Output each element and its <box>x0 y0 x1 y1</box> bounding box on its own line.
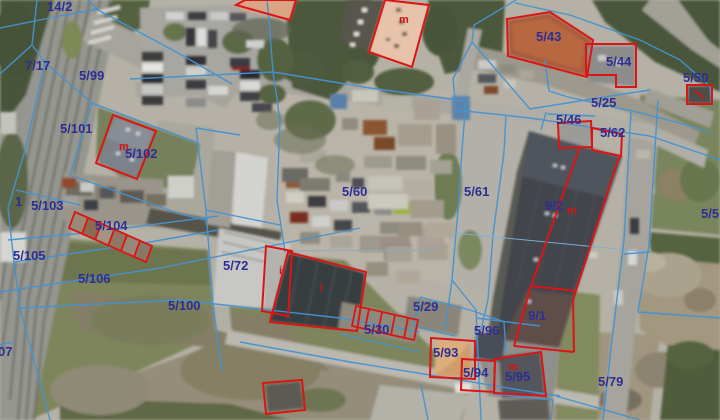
svg-text:5/46: 5/46 <box>556 112 581 127</box>
svg-text:5/104: 5/104 <box>95 218 128 233</box>
svg-text:i: i <box>320 282 323 294</box>
svg-text:5/99: 5/99 <box>79 68 104 83</box>
svg-text:14/2: 14/2 <box>47 0 72 14</box>
svg-text:5/44: 5/44 <box>606 54 632 69</box>
svg-text:5/60: 5/60 <box>342 184 367 199</box>
svg-text:5/96: 5/96 <box>474 323 499 338</box>
svg-text:m: m <box>399 14 409 26</box>
svg-text:5/102: 5/102 <box>125 146 158 161</box>
svg-text:5/105: 5/105 <box>13 248 46 263</box>
svg-text:5/94: 5/94 <box>463 365 489 380</box>
svg-text:1: 1 <box>15 194 22 209</box>
svg-text:9/1: 9/1 <box>528 308 546 323</box>
svg-text:5/43: 5/43 <box>536 29 561 44</box>
svg-text:5/30: 5/30 <box>364 322 389 337</box>
svg-text:07: 07 <box>0 344 12 359</box>
svg-text:5/5: 5/5 <box>701 206 719 221</box>
svg-text:5/62: 5/62 <box>600 125 625 140</box>
svg-text:5/101: 5/101 <box>60 121 93 136</box>
svg-text:9/2: 9/2 <box>545 198 563 213</box>
svg-text:m: m <box>508 361 518 373</box>
svg-text:7/17: 7/17 <box>25 58 50 73</box>
svg-text:5/100: 5/100 <box>168 298 201 313</box>
svg-text:5/25: 5/25 <box>591 95 616 110</box>
svg-text:5/72: 5/72 <box>223 258 248 273</box>
svg-text:5/79: 5/79 <box>598 374 623 389</box>
svg-text:m: m <box>567 205 577 217</box>
svg-text:i: i <box>279 265 282 277</box>
svg-text:5/106: 5/106 <box>78 271 111 286</box>
svg-text:m: m <box>119 141 129 153</box>
svg-text:5/61: 5/61 <box>464 184 489 199</box>
svg-text:5/50: 5/50 <box>683 70 708 85</box>
svg-text:5/93: 5/93 <box>433 345 458 360</box>
svg-text:5/103: 5/103 <box>31 198 64 213</box>
svg-text:5/29: 5/29 <box>413 299 438 314</box>
